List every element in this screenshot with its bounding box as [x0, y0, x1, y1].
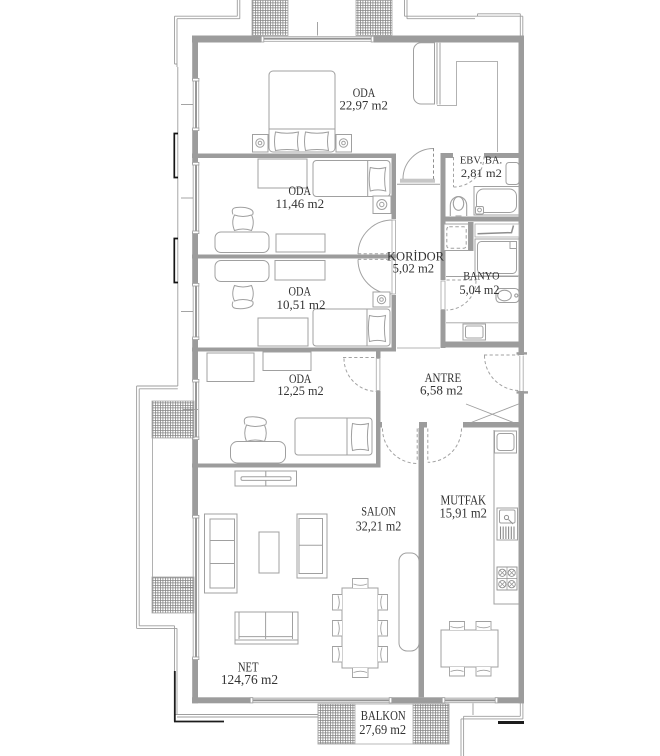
svg-text:124,76 m2: 124,76 m2 [221, 672, 278, 687]
svg-text:5,04 m2: 5,04 m2 [460, 283, 500, 297]
svg-text:32,21 m2: 32,21 m2 [356, 519, 402, 534]
svg-text:12,25 m2: 12,25 m2 [277, 383, 323, 398]
svg-text:11,46 m2: 11,46 m2 [276, 196, 325, 211]
svg-text:15,91 m2: 15,91 m2 [439, 506, 487, 521]
svg-text:5,02 m2: 5,02 m2 [393, 262, 434, 276]
svg-text:2,81 m2: 2,81 m2 [461, 166, 502, 180]
svg-text:BANYO: BANYO [463, 271, 499, 283]
svg-text:6,58 m2: 6,58 m2 [420, 383, 463, 398]
svg-text:SALON: SALON [361, 505, 396, 519]
svg-text:EBV. BA.: EBV. BA. [460, 156, 502, 167]
svg-text:27,69 m2: 27,69 m2 [359, 722, 406, 737]
svg-text:22,97 m2: 22,97 m2 [339, 98, 388, 113]
svg-text:BALKON: BALKON [361, 708, 406, 723]
svg-text:10,51 m2: 10,51 m2 [277, 297, 326, 312]
